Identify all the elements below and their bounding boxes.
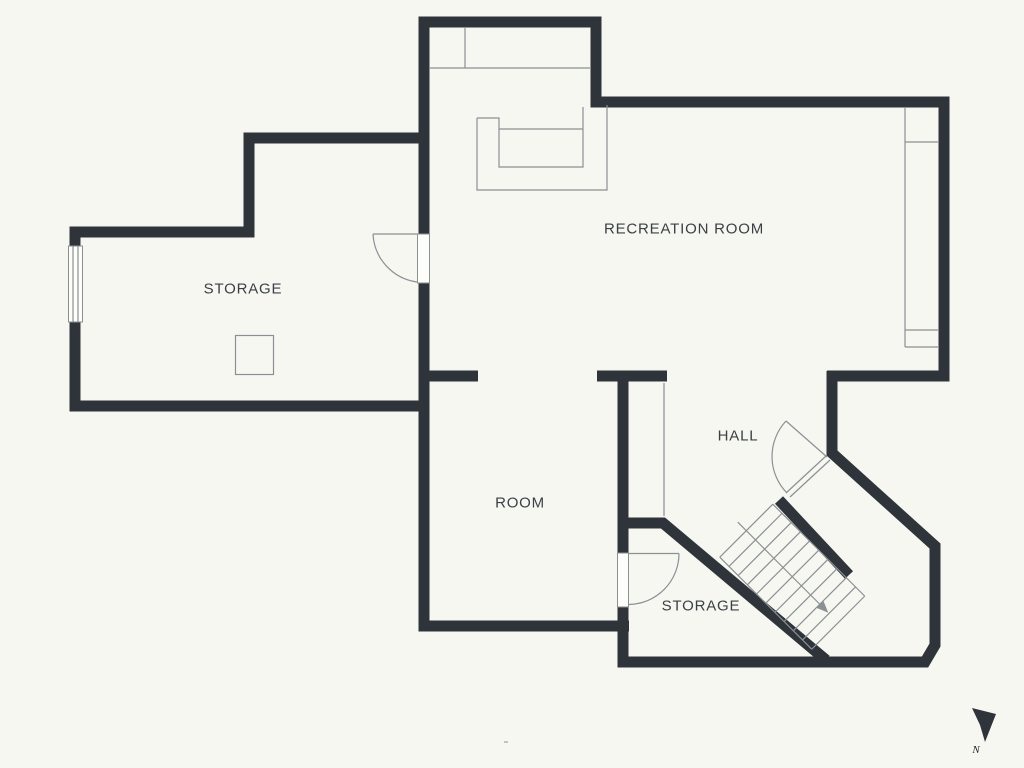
north-arrow-icon — [972, 708, 996, 742]
closet-right-wall — [905, 107, 938, 347]
door-threshold-lines — [786, 456, 830, 497]
room-label-hall: HALL — [718, 428, 759, 445]
render-artifact-dot — [504, 741, 508, 743]
door-swing-arc — [772, 421, 787, 493]
door-leaf — [786, 421, 827, 457]
wall-stair-stub — [779, 500, 849, 575]
door-jamb — [618, 553, 629, 607]
wall-envelope-top — [424, 22, 944, 376]
window-frame — [69, 246, 83, 322]
wall-storage-bottom — [75, 322, 429, 406]
door-storage-upper — [373, 234, 430, 283]
storage-column — [236, 336, 274, 375]
door-jamb — [418, 234, 430, 283]
room-label-storage-lower: STORAGE — [662, 598, 741, 615]
sofa — [477, 105, 607, 190]
room-label-storage-upper: STORAGE — [204, 281, 283, 298]
door-hall-diagonal — [772, 421, 830, 497]
staircase — [711, 496, 864, 649]
floor-plan-drawing — [0, 0, 1024, 768]
wall-storage-top-jog — [75, 138, 429, 246]
window-left — [69, 246, 83, 322]
room-label-recreation: RECREATION ROOM — [604, 221, 764, 238]
wall-left-lower-and-room-bottom — [424, 283, 629, 626]
room-label-room: ROOM — [495, 495, 545, 512]
sofa-inner — [477, 107, 583, 167]
protrusion-closet-lines — [429, 28, 590, 68]
walls — [75, 22, 944, 662]
north-label: N — [972, 744, 979, 756]
door-swing-arc — [373, 234, 417, 282]
